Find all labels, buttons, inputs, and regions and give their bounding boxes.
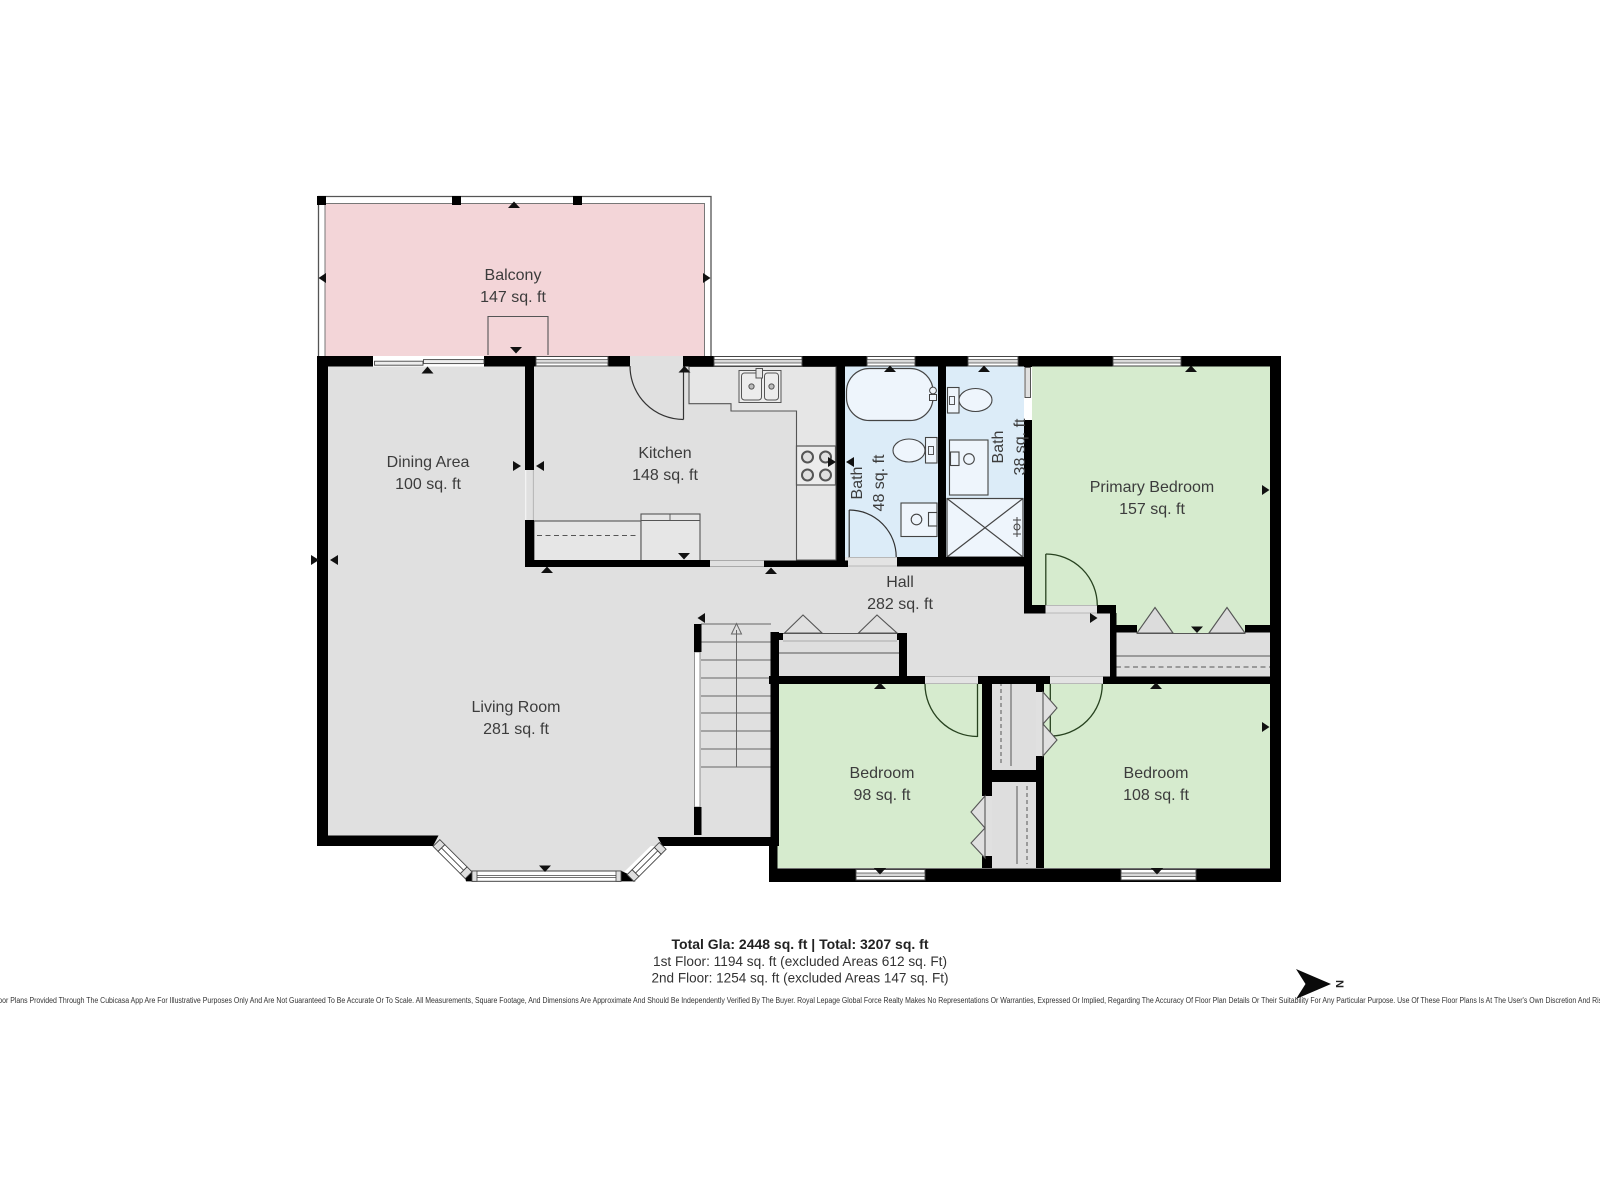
svg-text:281 sq. ft: 281 sq. ft bbox=[483, 721, 549, 738]
svg-text:Bath: Bath bbox=[990, 431, 1007, 464]
svg-text:282 sq. ft: 282 sq. ft bbox=[867, 596, 933, 613]
svg-text:98 sq. ft: 98 sq. ft bbox=[854, 787, 911, 804]
svg-text:Bedroom: Bedroom bbox=[1124, 765, 1189, 782]
svg-text:157 sq. ft: 157 sq. ft bbox=[1119, 501, 1185, 518]
svg-text:Total Gla: 2448 sq. ft | Total: Total Gla: 2448 sq. ft | Total: 3207 sq.… bbox=[672, 937, 930, 952]
svg-text:Bedroom: Bedroom bbox=[850, 765, 915, 782]
svg-text:Hall: Hall bbox=[886, 574, 914, 591]
svg-text:Floor Plans Provided Through T: Floor Plans Provided Through The Cubicas… bbox=[0, 996, 1600, 1005]
svg-text:Living Room: Living Room bbox=[472, 699, 561, 716]
svg-text:2nd Floor: 1254 sq. ft (exclud: 2nd Floor: 1254 sq. ft (excluded Areas 1… bbox=[652, 971, 949, 986]
svg-text:Balcony: Balcony bbox=[485, 267, 542, 284]
svg-text:147 sq. ft: 147 sq. ft bbox=[480, 289, 546, 306]
svg-text:Bath: Bath bbox=[849, 467, 866, 500]
svg-text:Dining Area: Dining Area bbox=[387, 454, 470, 471]
svg-text:Kitchen: Kitchen bbox=[638, 445, 691, 462]
svg-text:38 sq. ft: 38 sq. ft bbox=[1012, 418, 1029, 475]
svg-text:48 sq. ft: 48 sq. ft bbox=[871, 454, 888, 511]
svg-text:Primary Bedroom: Primary Bedroom bbox=[1090, 479, 1214, 496]
svg-text:148 sq. ft: 148 sq. ft bbox=[632, 467, 698, 484]
svg-text:N: N bbox=[1333, 980, 1345, 988]
svg-text:108 sq. ft: 108 sq. ft bbox=[1123, 787, 1189, 804]
svg-text:100 sq. ft: 100 sq. ft bbox=[395, 476, 461, 493]
svg-text:1st Floor: 1194 sq. ft (exclud: 1st Floor: 1194 sq. ft (excluded Areas 6… bbox=[653, 954, 947, 969]
